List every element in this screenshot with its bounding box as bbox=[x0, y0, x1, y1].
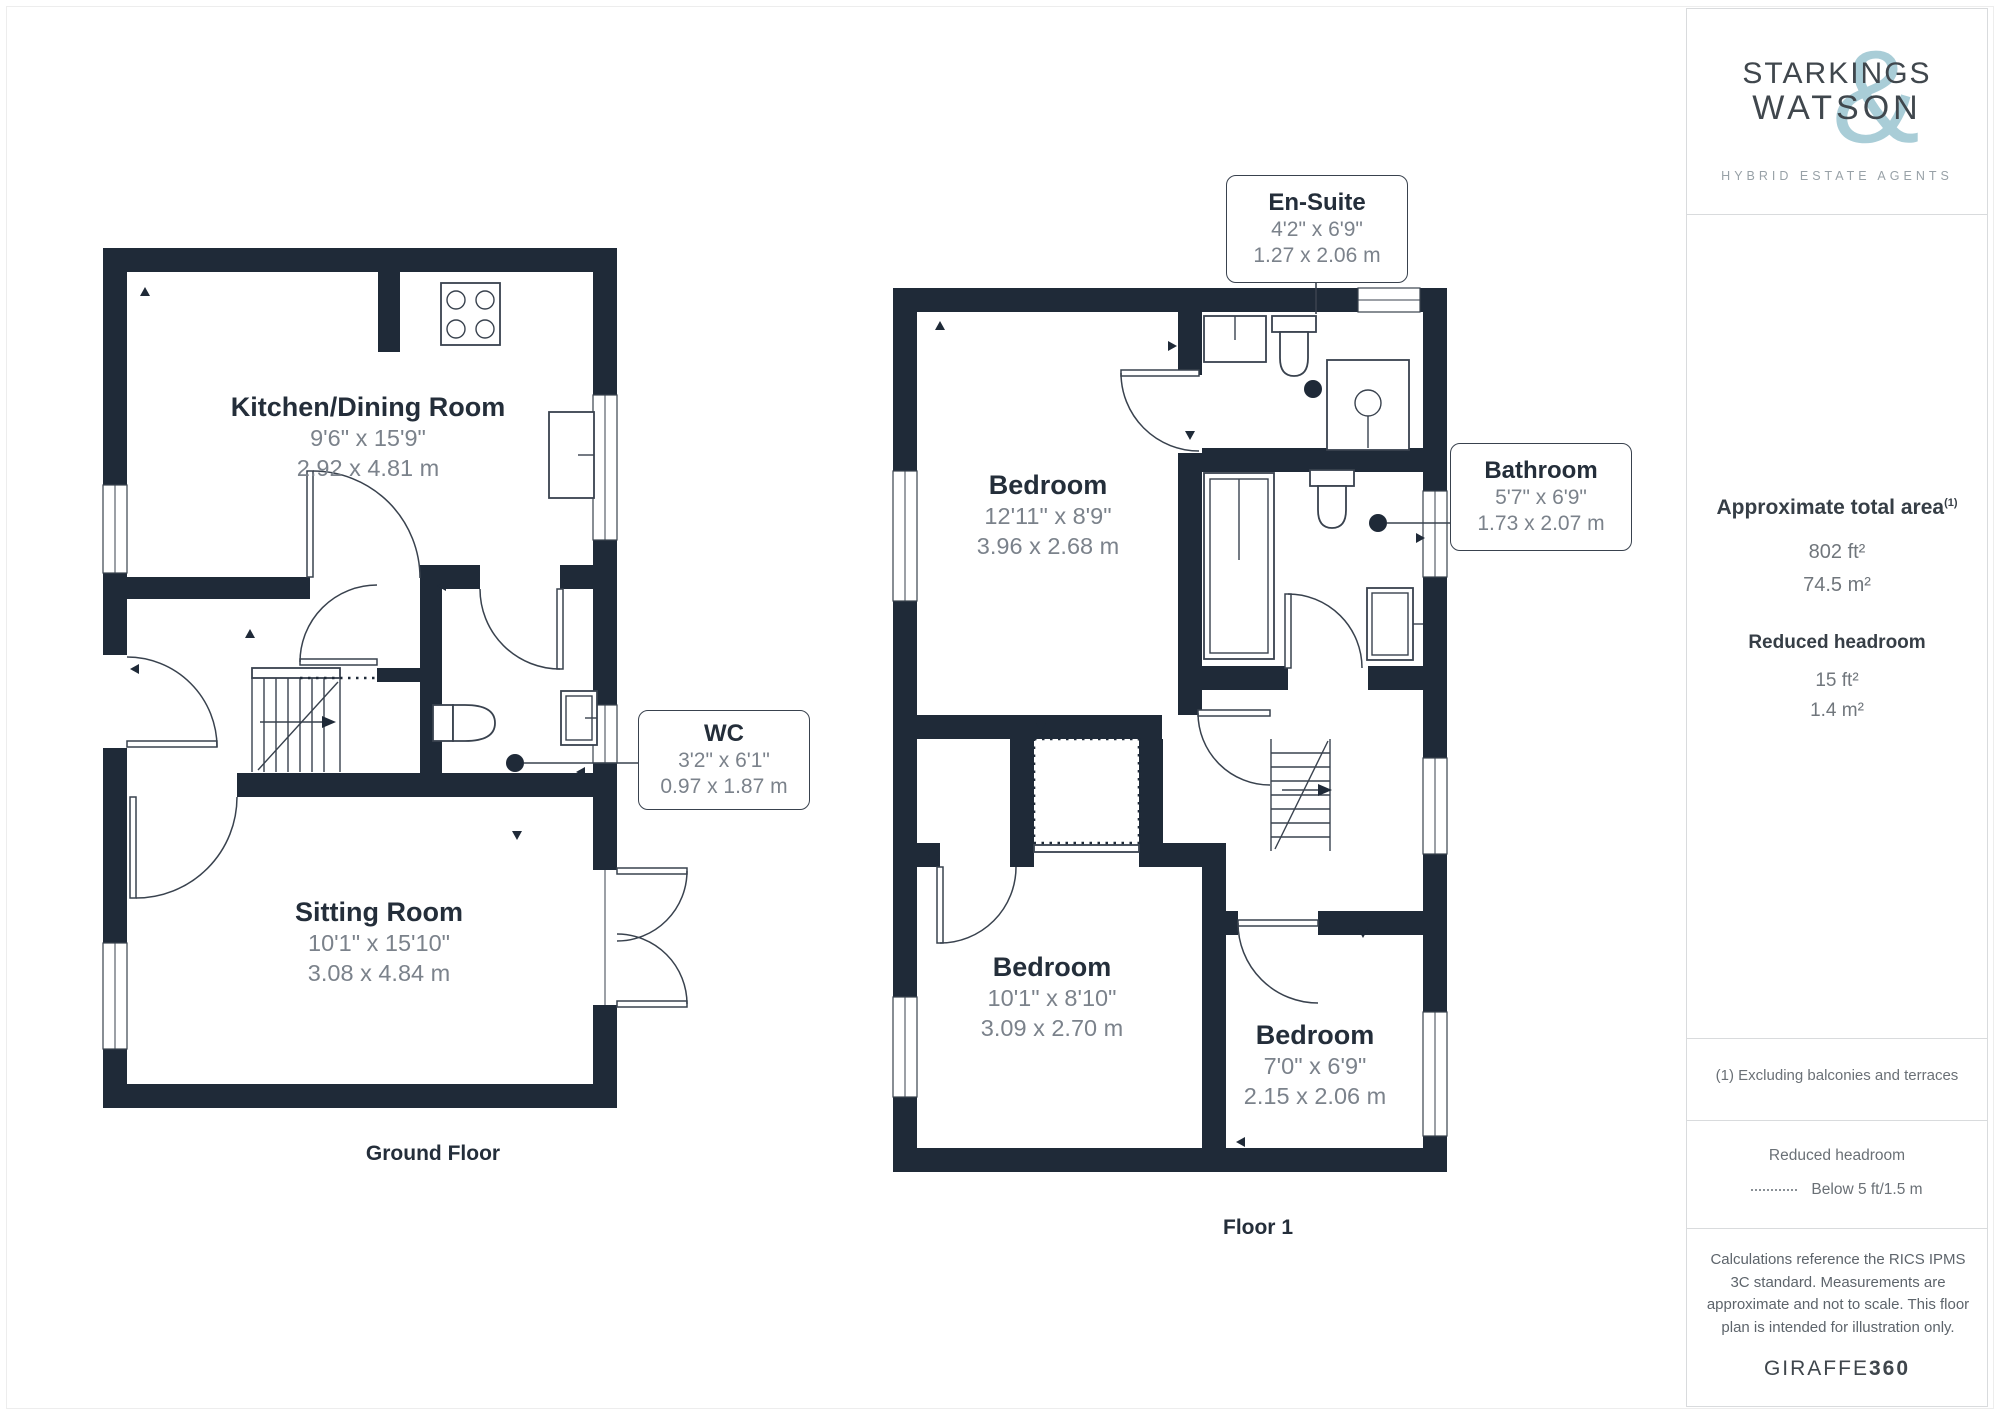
room-name: En-Suite bbox=[1268, 189, 1365, 217]
basin-icon bbox=[1367, 588, 1423, 660]
footnote-marker: (1) bbox=[1944, 497, 1957, 509]
reduced-headroom-metric: 1.4 m² bbox=[1687, 696, 1987, 726]
total-area-metric: 74.5 m² bbox=[1687, 569, 1987, 602]
area-stats: Approximate total area(1) 802 ft² 74.5 m… bbox=[1687, 496, 1987, 727]
room-dims-imperial: 5'7" x 6'9" bbox=[1495, 485, 1587, 511]
callout-ensuite: En-Suite 4'2" x 6'9" 1.27 x 2.06 m bbox=[1226, 175, 1408, 283]
total-area-title: Approximate total area(1) bbox=[1687, 496, 1987, 520]
room-dims-imperial: 9'6" x 15'9" bbox=[231, 423, 505, 453]
cupboard-icon bbox=[1204, 473, 1274, 659]
french-doors bbox=[593, 868, 687, 1007]
camera-dot bbox=[506, 754, 524, 772]
sidebar-divider bbox=[1687, 214, 1987, 215]
room-dims-imperial: 10'1" x 15'10" bbox=[295, 928, 463, 958]
giraffe360-logo: GIRAFFE360 bbox=[1687, 1357, 1987, 1381]
bathroom-door bbox=[1285, 594, 1362, 668]
legend-row: Below 5 ft/1.5 m bbox=[1687, 1181, 1987, 1199]
room-name: Bathroom bbox=[1484, 457, 1597, 485]
sink-icon bbox=[1204, 316, 1266, 362]
stairs-icon bbox=[1271, 739, 1332, 851]
room-label-bedroom-3: Bedroom 7'0" x 6'9" 2.15 x 2.06 m bbox=[1244, 1020, 1386, 1111]
room-dims-metric: 0.97 x 1.87 m bbox=[660, 774, 787, 800]
room-dims-metric: 3.96 x 2.68 m bbox=[977, 531, 1119, 561]
brand-tagline: HYBRID ESTATE AGENTS bbox=[1687, 169, 1987, 183]
brand-name-line1: STARKINGS bbox=[1687, 57, 1987, 91]
sitting-room-door bbox=[130, 797, 237, 898]
room-label-bedroom-1: Bedroom 12'11" x 8'9" 3.96 x 2.68 m bbox=[977, 470, 1119, 561]
callout-bathroom: Bathroom 5'7" x 6'9" 1.73 x 2.07 m bbox=[1450, 443, 1632, 551]
floor-caption-first: Floor 1 bbox=[1223, 1216, 1293, 1240]
room-dims-metric: 1.73 x 2.07 m bbox=[1477, 511, 1604, 537]
sidebar-divider bbox=[1687, 1038, 1987, 1039]
room-dims-metric: 2.92 x 4.81 m bbox=[231, 453, 505, 483]
legend-label: Below 5 ft/1.5 m bbox=[1811, 1181, 1922, 1199]
room-label-kitchen: Kitchen/Dining Room 9'6" x 15'9" 2.92 x … bbox=[231, 392, 505, 483]
reduced-headroom-area bbox=[1034, 739, 1139, 843]
area-footnote: (1) Excluding balconies and terraces bbox=[1687, 1067, 1987, 1084]
hall-door bbox=[480, 589, 563, 669]
bedroom-door bbox=[937, 867, 1016, 943]
kitchen-unit-icon bbox=[549, 412, 594, 498]
bedroom-door bbox=[1238, 920, 1318, 1003]
legend-title: Reduced headroom bbox=[1687, 1147, 1987, 1165]
toilet-icon bbox=[1272, 316, 1316, 376]
room-dims-imperial: 7'0" x 6'9" bbox=[1244, 1051, 1386, 1081]
total-area-imperial: 802 ft² bbox=[1687, 536, 1987, 569]
giraffe360-suffix: 360 bbox=[1869, 1357, 1910, 1380]
room-name: Kitchen/Dining Room bbox=[231, 392, 505, 423]
room-name: Bedroom bbox=[977, 470, 1119, 501]
toilet-icon bbox=[1310, 470, 1354, 528]
room-dims-imperial: 3'2" x 6'1" bbox=[678, 748, 770, 774]
room-name: Sitting Room bbox=[295, 897, 463, 928]
room-name: Bedroom bbox=[1244, 1020, 1386, 1051]
shower-icon bbox=[1327, 360, 1409, 450]
stove-icon bbox=[441, 283, 500, 345]
room-label-bedroom-2: Bedroom 10'1" x 8'10" 3.09 x 2.70 m bbox=[981, 952, 1123, 1043]
sidebar-divider bbox=[1687, 1228, 1987, 1229]
bedroom-door bbox=[1198, 710, 1270, 785]
toilet-icon bbox=[433, 705, 495, 741]
room-dims-metric: 3.08 x 4.84 m bbox=[295, 958, 463, 988]
room-name: WC bbox=[704, 720, 744, 748]
giraffe360-name: GIRAFFE bbox=[1764, 1357, 1869, 1380]
kitchen-door bbox=[300, 471, 420, 665]
floorplan-page: Kitchen/Dining Room 9'6" x 15'9" 2.92 x … bbox=[0, 0, 2000, 1415]
callout-wc: WC 3'2" x 6'1" 0.97 x 1.87 m bbox=[638, 710, 810, 810]
room-name: Bedroom bbox=[981, 952, 1123, 983]
disclaimer-text: Calculations reference the RICS IPMS 3C … bbox=[1705, 1249, 1971, 1339]
stairs-icon bbox=[252, 668, 340, 772]
room-dims-metric: 1.27 x 2.06 m bbox=[1253, 243, 1380, 269]
room-dims-imperial: 12'11" x 8'9" bbox=[977, 501, 1119, 531]
basin-icon bbox=[561, 691, 597, 745]
floor-caption-ground: Ground Floor bbox=[366, 1142, 500, 1166]
room-label-sitting-room: Sitting Room 10'1" x 15'10" 3.08 x 4.84 … bbox=[295, 897, 463, 988]
ensuite-door bbox=[1121, 370, 1199, 451]
room-dims-imperial: 10'1" x 8'10" bbox=[981, 983, 1123, 1013]
dashed-line-icon bbox=[1751, 1189, 1797, 1191]
info-sidebar: & STARKINGS WATSON HYBRID ESTATE AGENTS … bbox=[1686, 8, 1988, 1407]
reduced-headroom-title: Reduced headroom bbox=[1687, 632, 1987, 654]
brand-name-line2: WATSON bbox=[1687, 89, 1987, 128]
room-dims-metric: 2.15 x 2.06 m bbox=[1244, 1081, 1386, 1111]
camera-dot bbox=[1304, 380, 1322, 398]
landing-balustrade bbox=[1034, 845, 1139, 852]
room-dims-metric: 3.09 x 2.70 m bbox=[981, 1013, 1123, 1043]
room-dims-imperial: 4'2" x 6'9" bbox=[1271, 217, 1363, 243]
sidebar-divider bbox=[1687, 1120, 1987, 1121]
agency-logo: & STARKINGS WATSON HYBRID ESTATE AGENTS bbox=[1687, 9, 1987, 214]
front-door bbox=[103, 655, 217, 748]
camera-dot bbox=[1369, 514, 1387, 532]
reduced-headroom-imperial: 15 ft² bbox=[1687, 666, 1987, 696]
